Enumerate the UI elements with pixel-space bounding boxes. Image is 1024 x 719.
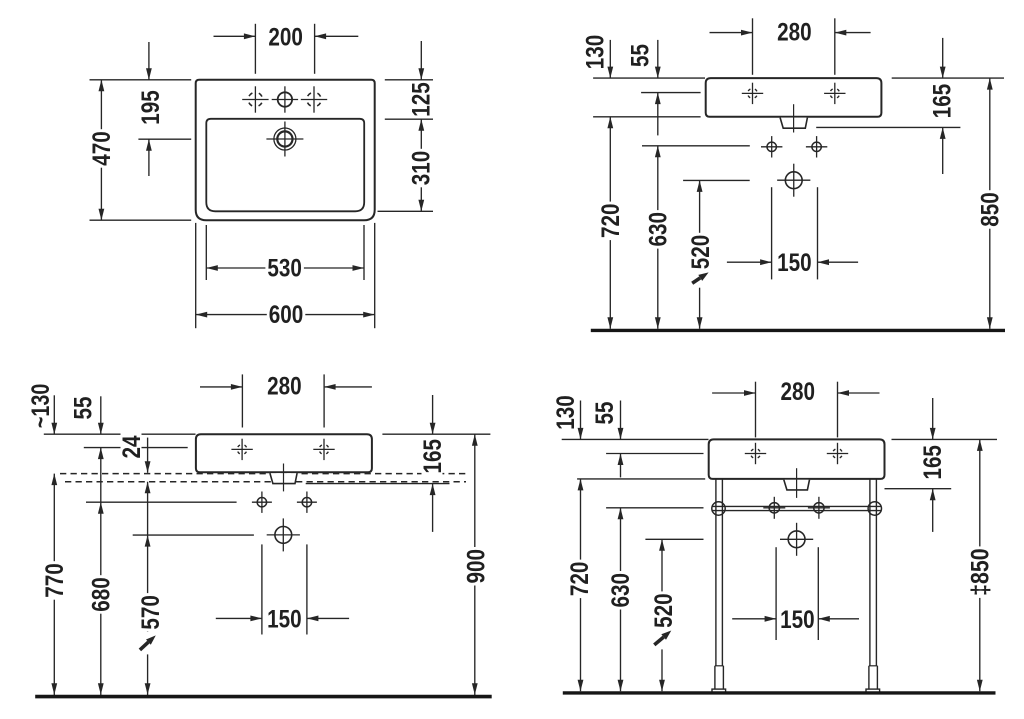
svg-text:~130: ~130 xyxy=(27,384,55,429)
svg-text:280: 280 xyxy=(777,19,812,47)
svg-text:165: 165 xyxy=(928,84,956,119)
svg-text:24: 24 xyxy=(118,435,146,458)
svg-text:900: 900 xyxy=(462,549,490,584)
svg-text:150: 150 xyxy=(267,605,302,633)
svg-text:520: 520 xyxy=(650,593,678,628)
svg-text:850: 850 xyxy=(976,192,1004,227)
svg-text:200: 200 xyxy=(268,23,303,51)
svg-text:470: 470 xyxy=(88,131,116,166)
svg-text:280: 280 xyxy=(781,378,816,406)
svg-text:720: 720 xyxy=(566,562,594,597)
svg-text:125: 125 xyxy=(408,82,436,117)
svg-text:130: 130 xyxy=(552,395,580,430)
svg-text:55: 55 xyxy=(69,396,97,419)
svg-text:310: 310 xyxy=(408,151,436,186)
svg-text:55: 55 xyxy=(591,401,619,424)
svg-text:150: 150 xyxy=(780,606,815,634)
svg-text:165: 165 xyxy=(919,445,947,480)
svg-text:570: 570 xyxy=(137,595,165,630)
svg-text:‡850: ‡850 xyxy=(966,548,994,596)
svg-text:55: 55 xyxy=(627,44,655,67)
svg-text:150: 150 xyxy=(777,249,812,277)
svg-text:165: 165 xyxy=(419,439,447,474)
svg-text:130: 130 xyxy=(582,35,610,70)
svg-text:600: 600 xyxy=(269,301,304,329)
svg-text:770: 770 xyxy=(41,563,69,598)
svg-text:630: 630 xyxy=(644,212,672,247)
svg-text:280: 280 xyxy=(267,372,302,400)
svg-text:630: 630 xyxy=(607,573,635,608)
svg-text:680: 680 xyxy=(87,577,115,612)
svg-text:720: 720 xyxy=(597,204,625,239)
svg-text:520: 520 xyxy=(687,235,715,270)
svg-text:530: 530 xyxy=(267,255,302,283)
svg-text:195: 195 xyxy=(137,90,165,125)
